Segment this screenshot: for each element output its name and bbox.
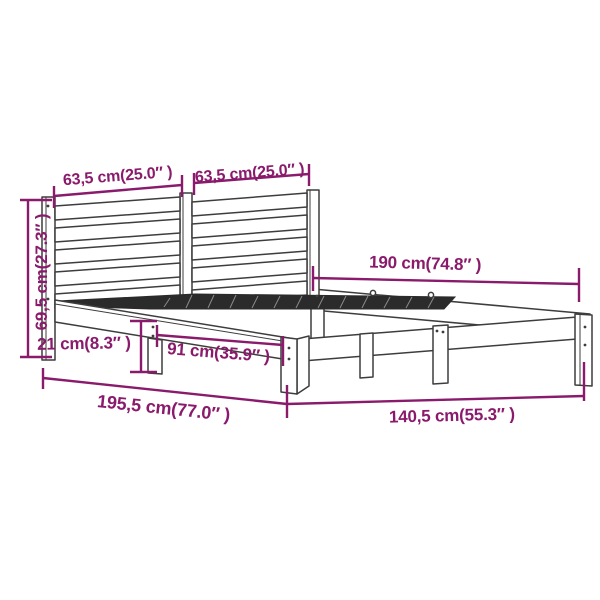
headboard-slat: [55, 219, 180, 242]
center-leg: [360, 333, 373, 378]
dim-label-inner-length: 190 cm(74.8″ ): [369, 253, 482, 275]
dim-headboard-section-right: 63,5 cm(25.0″ ): [194, 161, 309, 195]
bolt-head: [428, 292, 433, 297]
dim-label-under-bed-clearance: 21 cm(8.3″ ): [37, 333, 131, 354]
dim-overall-length: 195,5 cm(77.0″ ): [43, 368, 287, 425]
far-middle-leg: [433, 325, 448, 384]
headboard-slat: [192, 237, 307, 260]
headboard-middle-post: [180, 193, 192, 302]
foot-left-leg-side: [297, 336, 309, 394]
bolt-head: [370, 290, 375, 295]
dim-label-headboard-section-left: 63,5 cm(25.0″ ): [62, 164, 173, 190]
headboard-slat: [55, 263, 180, 286]
middle-left-leg: [148, 338, 162, 374]
headboard-slat: [55, 197, 180, 220]
headboard-slat: [192, 259, 307, 282]
headboard-slat: [55, 241, 180, 264]
headboard-slat: [192, 215, 307, 238]
dim-label-headboard-section-right: 63,5 cm(25.0″ ): [194, 161, 305, 187]
bed-frame-illustration: 63,5 cm(25.0″ ) 63,5 cm(25.0″ ) 190 cm(7…: [0, 0, 600, 600]
dim-label-headboard-height: 69,5 cm(27.3″ ): [32, 214, 51, 331]
product-dimension-image: 63,5 cm(25.0″ ) 63,5 cm(25.0″ ) 190 cm(7…: [0, 0, 600, 600]
dim-label-overall-width: 140,5 cm(55.3″ ): [389, 404, 515, 426]
headboard-slat: [192, 193, 307, 216]
